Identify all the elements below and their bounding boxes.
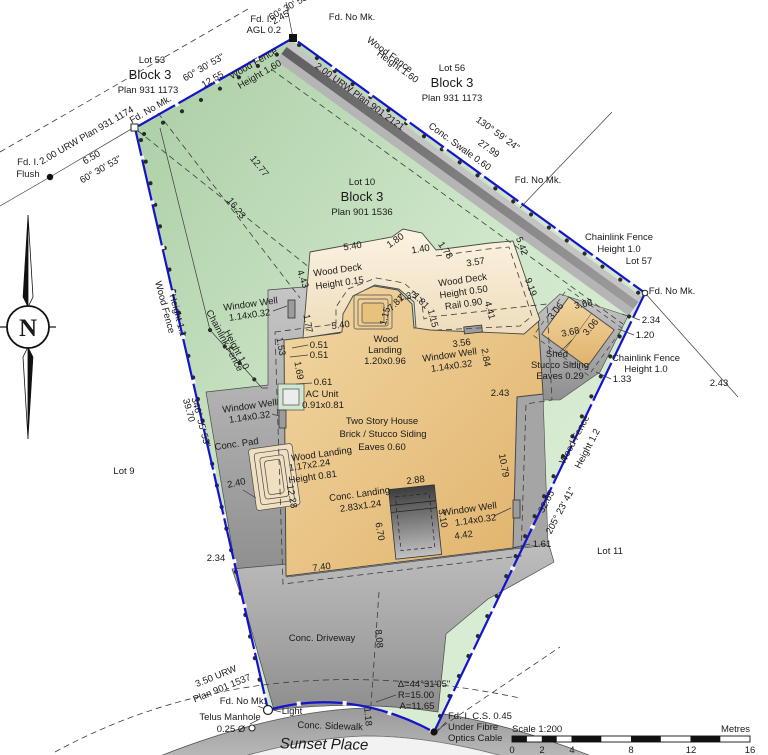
map-label: 2.43 xyxy=(491,388,510,399)
map-label: AC Unit xyxy=(306,389,339,400)
site-plan-drawing: 60° 30' 53"2.45Fd. I.AGL 0.2Fd. No Mk.Lo… xyxy=(0,0,768,755)
monument-fdi-agl xyxy=(289,34,297,42)
map-label: Fd. I. xyxy=(17,157,39,168)
map-label: Lot 56 xyxy=(439,63,465,74)
map-label: Telus Manhole xyxy=(199,712,260,723)
map-label: Lot 11 xyxy=(597,546,623,557)
map-label: Block 3 xyxy=(431,75,474,90)
map-label: Chainlink Fence xyxy=(585,232,653,243)
map-label: Conc. Driveway xyxy=(289,633,356,644)
map-label: Chainlink Fence xyxy=(612,353,680,364)
map-label: Eaves 0.29 xyxy=(536,371,584,382)
map-label: R=15.00 xyxy=(398,690,434,701)
map-label: Fd. I. C.S. 0.45 xyxy=(448,711,512,722)
map-label: Wood xyxy=(374,334,399,345)
map-label: 2.34 xyxy=(642,315,661,326)
lotline-ext-ne xyxy=(520,112,612,208)
units-text: Metres xyxy=(721,724,750,735)
map-label: 0.61 xyxy=(314,377,333,388)
map-label: Landing xyxy=(368,345,402,356)
map-label: 2 xyxy=(539,745,544,755)
map-label: Block 3 xyxy=(341,189,384,204)
map-label: 8.08 xyxy=(372,629,385,648)
monument-e-corner xyxy=(642,290,648,296)
map-label: 8 xyxy=(628,745,633,755)
map-label: 2.34 xyxy=(207,553,226,564)
monument-fdi-flush xyxy=(47,174,53,180)
window-well-ne xyxy=(464,325,483,334)
map-label: 0.51 xyxy=(310,350,329,361)
map-label: Shed xyxy=(546,349,568,360)
map-label: 0.25 Ø xyxy=(217,724,246,735)
map-label: Eaves 0.60 xyxy=(358,442,406,453)
map-label: Optics Cable xyxy=(448,733,502,744)
map-label: 1.20x0.96 xyxy=(364,356,406,367)
map-label: 1.20 xyxy=(636,330,655,341)
map-label: Plan 931 1173 xyxy=(118,85,179,96)
conc-landing xyxy=(389,485,442,559)
site-plan-canvas: 60° 30' 53"2.45Fd. I.AGL 0.2Fd. No Mk.Lo… xyxy=(0,0,768,755)
map-label: Lot 9 xyxy=(113,466,134,477)
telus-manhole-symbol xyxy=(249,725,255,731)
map-label: 1.33 xyxy=(613,374,632,385)
ac-unit xyxy=(278,384,304,410)
map-label: AGL 0.2 xyxy=(246,25,281,36)
map-label: 12 xyxy=(686,745,697,755)
map-label: 4 xyxy=(569,745,574,755)
street-name: Sunset Place xyxy=(280,735,369,754)
map-label: Fd. No Mk. xyxy=(649,286,695,297)
map-label: 16 xyxy=(745,745,756,755)
monument-fdics xyxy=(430,728,437,735)
map-label: 0.91x0.81 xyxy=(302,400,344,411)
window-well-w xyxy=(279,410,286,428)
map-label: Fd. No Mk. xyxy=(220,696,266,707)
map-label: Two Story House xyxy=(346,416,418,427)
map-label: 0 xyxy=(509,745,514,755)
map-label: Lot 57 xyxy=(626,256,652,267)
scale-text: Scale 1:200 xyxy=(512,724,562,735)
east-walk-area xyxy=(513,394,548,548)
north-letter: N xyxy=(19,315,37,342)
map-label: Under Fibre xyxy=(448,722,498,733)
scale-bar xyxy=(512,736,750,742)
driveway-area xyxy=(232,545,554,712)
map-label: A=11.65 xyxy=(400,701,435,712)
map-label: Flush xyxy=(16,169,39,180)
map-label: Fd. No Mk. xyxy=(515,175,561,186)
map-label: 1.61 xyxy=(533,539,552,550)
map-label: Brick / Stucco Siding xyxy=(339,429,426,440)
map-label: Lot 53 xyxy=(139,55,165,66)
window-well-e xyxy=(513,500,520,518)
map-label: Height 1.0 xyxy=(597,244,640,255)
map-label: Block 3 xyxy=(129,67,172,82)
map-label: Δ=44°31'05" xyxy=(398,679,451,690)
map-label: Light xyxy=(282,706,303,717)
map-label: Plan 931 1173 xyxy=(422,93,483,104)
map-label: Conc. Sidewalk xyxy=(297,720,363,733)
map-label: 1.18 xyxy=(361,707,374,726)
leader-light xyxy=(273,710,281,712)
map-label: Fd. I. xyxy=(250,14,272,25)
map-label: Plan 901 1536 xyxy=(331,207,392,218)
map-label: Lot 10 xyxy=(349,177,375,188)
map-label: Fd. No Mk. xyxy=(329,12,375,23)
map-label: Stucco Siding xyxy=(531,360,589,371)
window-well-nw xyxy=(288,300,295,318)
map-label: 2.43 xyxy=(710,378,729,389)
